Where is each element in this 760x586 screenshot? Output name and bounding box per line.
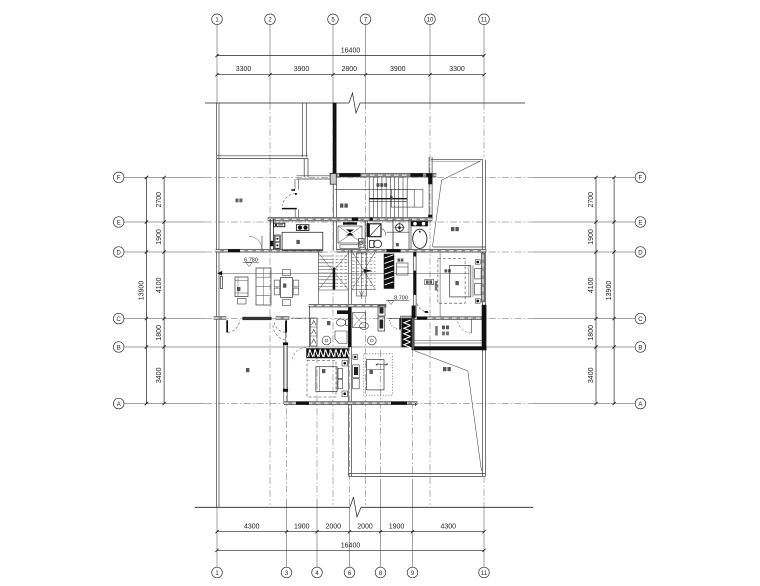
- svg-text:13900: 13900: [138, 281, 145, 301]
- svg-text:1900: 1900: [294, 523, 310, 530]
- svg-text:1800: 1800: [588, 325, 595, 341]
- svg-text:D: D: [638, 250, 643, 256]
- svg-text:B: B: [117, 345, 121, 351]
- svg-text:F: F: [117, 176, 121, 182]
- svg-text:3300: 3300: [236, 66, 252, 73]
- svg-text:11: 11: [481, 571, 488, 577]
- svg-text:1800: 1800: [156, 325, 163, 341]
- svg-text:A: A: [638, 402, 642, 408]
- svg-text:C: C: [638, 317, 643, 323]
- svg-text:3900: 3900: [294, 66, 310, 73]
- svg-text:1900: 1900: [588, 229, 595, 245]
- svg-text:2000: 2000: [325, 523, 341, 530]
- svg-text:2000: 2000: [357, 523, 373, 530]
- svg-text:13900: 13900: [606, 281, 613, 301]
- svg-text:4300: 4300: [440, 523, 456, 530]
- svg-text:11: 11: [481, 18, 488, 24]
- svg-text:E: E: [638, 220, 642, 226]
- svg-text:F: F: [639, 176, 643, 182]
- svg-text:10: 10: [427, 18, 434, 24]
- svg-text:D: D: [117, 250, 122, 256]
- svg-text:4100: 4100: [588, 277, 595, 293]
- svg-text:3400: 3400: [588, 367, 595, 383]
- svg-text:4100: 4100: [156, 277, 163, 293]
- svg-text:4300: 4300: [244, 523, 260, 530]
- svg-text:2700: 2700: [588, 192, 595, 208]
- svg-text:1900: 1900: [389, 523, 405, 530]
- svg-text:A: A: [117, 402, 121, 408]
- svg-text:3300: 3300: [449, 66, 465, 73]
- svg-text:1900: 1900: [156, 229, 163, 245]
- svg-text:B: B: [638, 345, 642, 351]
- svg-text:E: E: [117, 220, 121, 226]
- svg-text:C: C: [117, 317, 122, 323]
- svg-text:3900: 3900: [390, 66, 406, 73]
- svg-text:2800: 2800: [341, 66, 357, 73]
- svg-text:3400: 3400: [156, 367, 163, 383]
- svg-text:16400: 16400: [341, 542, 361, 549]
- svg-text:16400: 16400: [341, 48, 361, 55]
- svg-text:2700: 2700: [156, 192, 163, 208]
